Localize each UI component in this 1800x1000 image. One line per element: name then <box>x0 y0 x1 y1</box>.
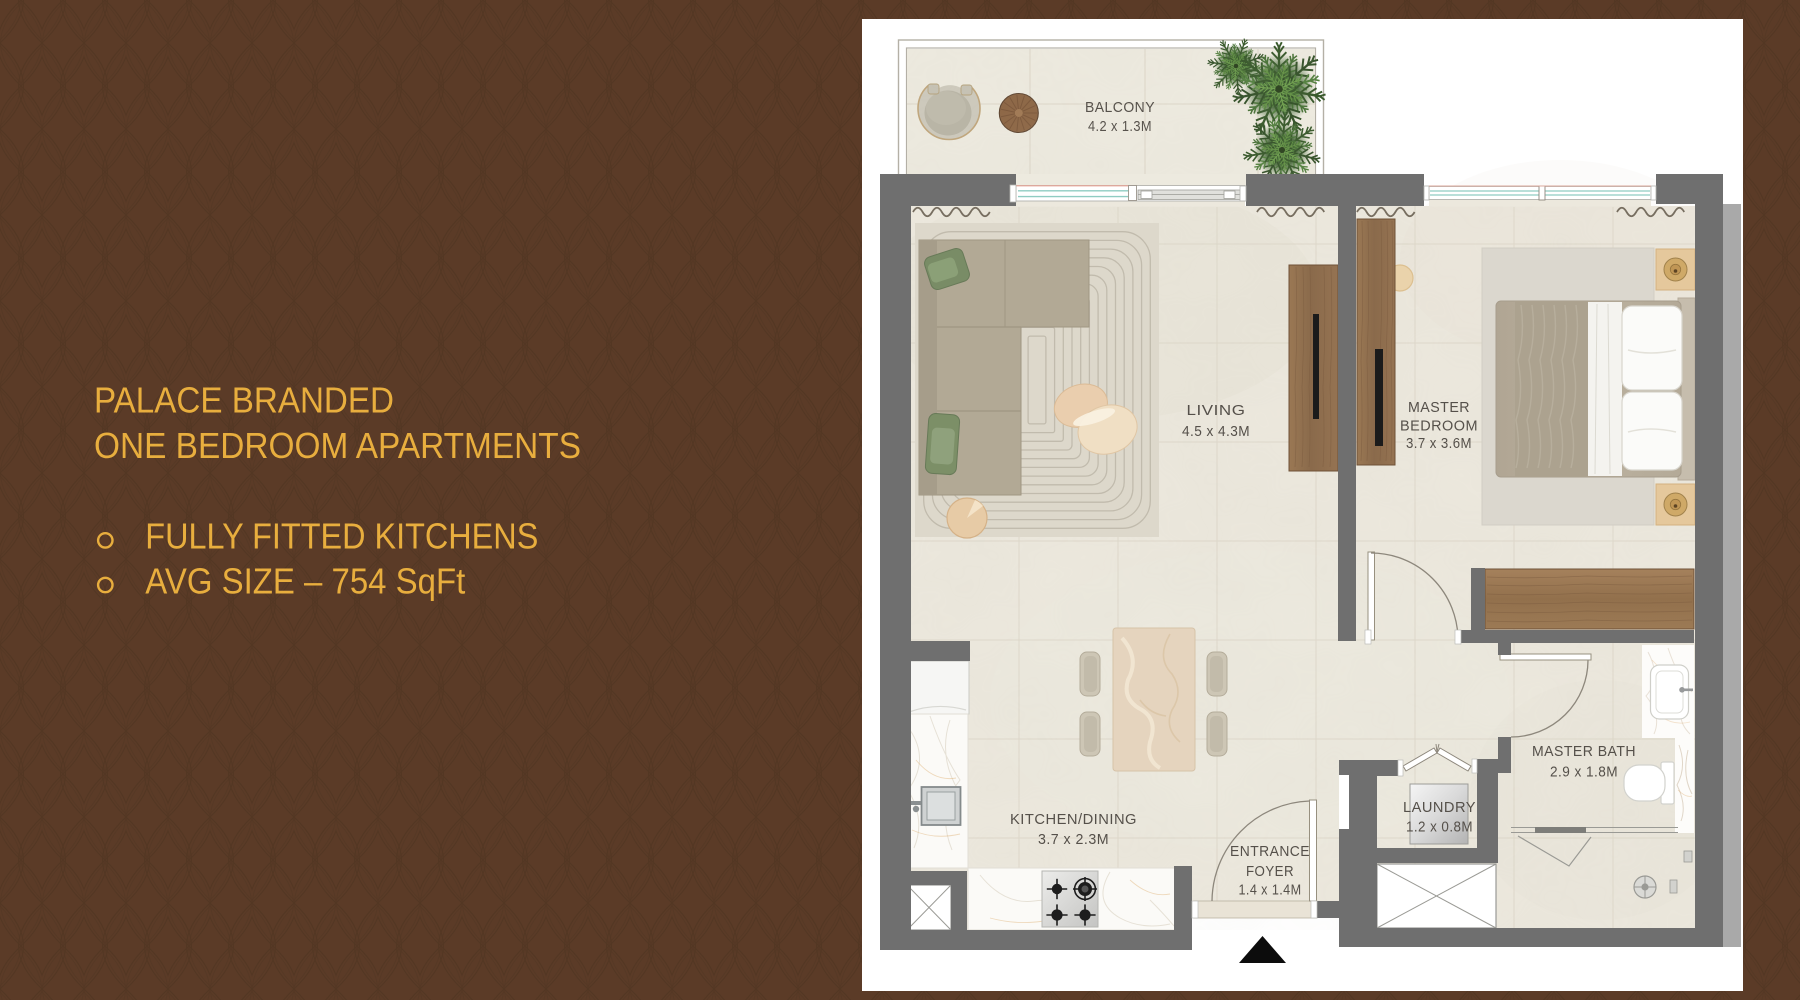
svg-text:LIVING: LIVING <box>1187 402 1246 419</box>
svg-text:MASTER: MASTER <box>1408 399 1470 416</box>
svg-text:4.5 x 4.3M: 4.5 x 4.3M <box>1182 423 1250 440</box>
svg-text:KITCHEN/DINING: KITCHEN/DINING <box>1010 811 1137 828</box>
svg-text:3.7 x 3.6M: 3.7 x 3.6M <box>1406 435 1472 452</box>
svg-text:FULLY FITTED KITCHENS: FULLY FITTED KITCHENS <box>145 517 538 557</box>
svg-text:LAUNDRY: LAUNDRY <box>1403 799 1476 816</box>
svg-text:AVG SIZE – 754 SqFt: AVG SIZE – 754 SqFt <box>145 561 465 601</box>
svg-text:1.4 x 1.4M: 1.4 x 1.4M <box>1239 882 1302 899</box>
svg-text:1.2 x 0.8M: 1.2 x 0.8M <box>1406 819 1473 836</box>
svg-text:2.9 x 1.8M: 2.9 x 1.8M <box>1550 764 1618 781</box>
svg-text:3.7 x 2.3M: 3.7 x 2.3M <box>1038 831 1109 848</box>
svg-text:MASTER BATH: MASTER BATH <box>1532 743 1636 760</box>
svg-text:ENTRANCE: ENTRANCE <box>1230 843 1310 860</box>
svg-text:BEDROOM: BEDROOM <box>1400 418 1478 435</box>
svg-text:FOYER: FOYER <box>1246 863 1294 880</box>
svg-text:PALACE BRANDED: PALACE BRANDED <box>94 380 394 421</box>
svg-text:ONE BEDROOM APARTMENTS: ONE BEDROOM APARTMENTS <box>94 425 581 466</box>
